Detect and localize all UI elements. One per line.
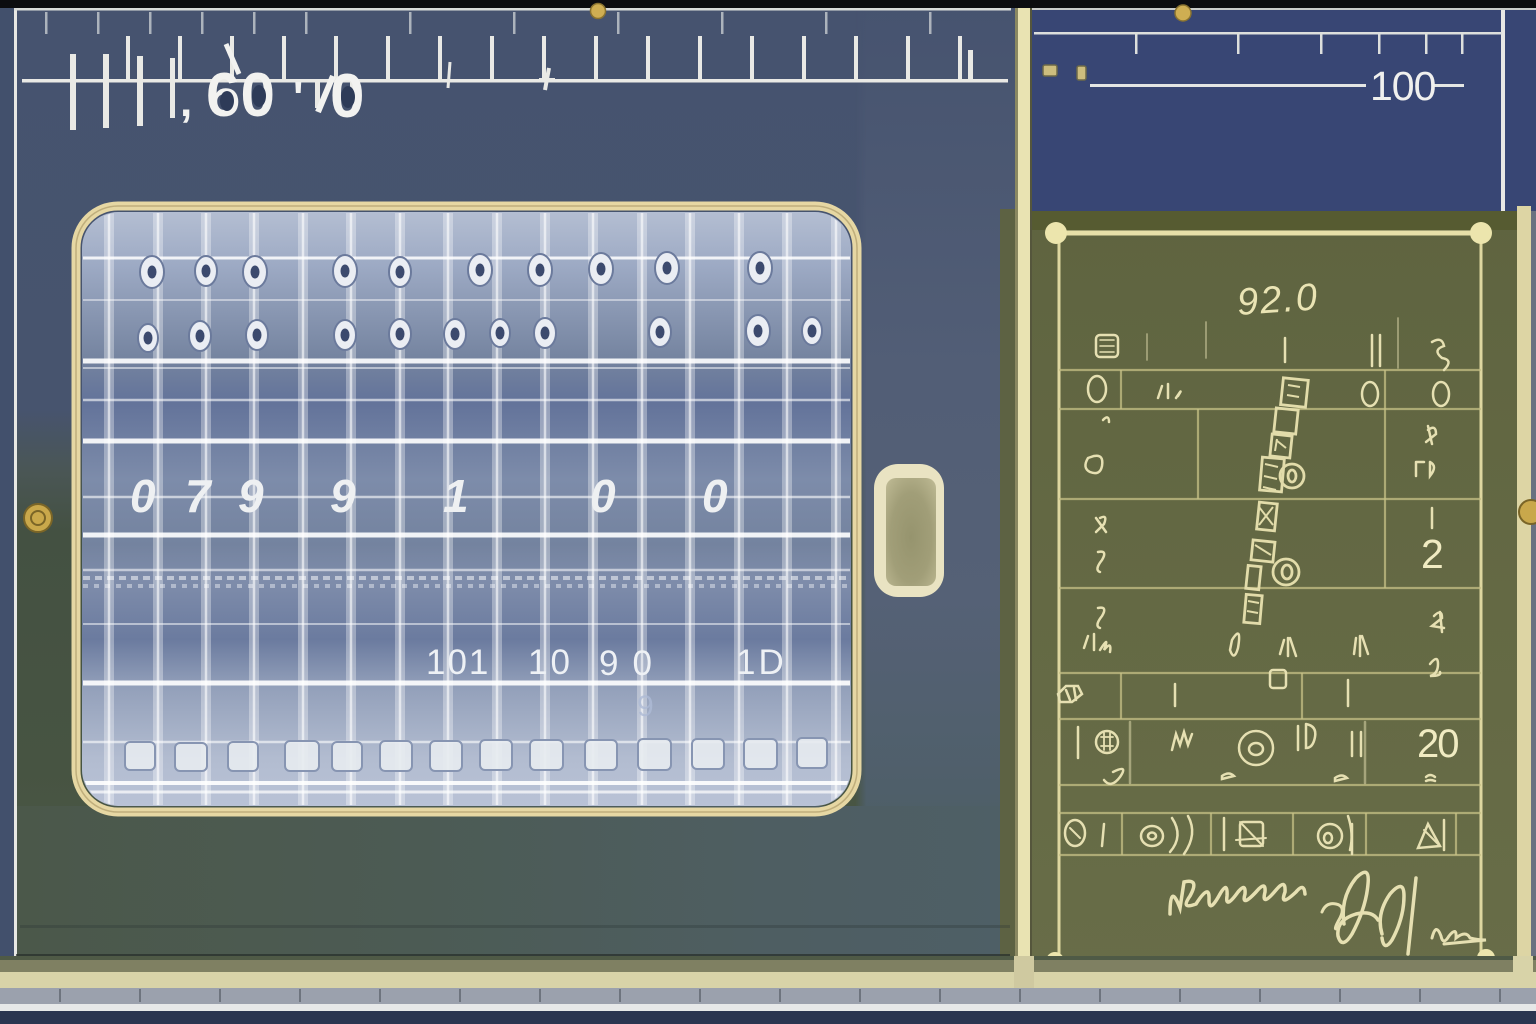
svg-text:9: 9 bbox=[637, 690, 654, 723]
svg-text:90: 90 bbox=[599, 644, 666, 683]
svg-text:20: 20 bbox=[1417, 722, 1458, 766]
svg-text:0: 0 bbox=[130, 470, 156, 522]
svg-text:2: 2 bbox=[1421, 531, 1444, 577]
svg-text:9: 9 bbox=[330, 470, 356, 522]
svg-text:': ' bbox=[293, 73, 303, 122]
svg-text:100: 100 bbox=[1370, 63, 1436, 109]
svg-text:9: 9 bbox=[238, 470, 264, 522]
svg-text:0: 0 bbox=[590, 470, 616, 522]
svg-text:7: 7 bbox=[185, 470, 213, 522]
svg-text:101: 101 bbox=[426, 643, 490, 682]
svg-text:0: 0 bbox=[702, 470, 728, 522]
svg-text:1: 1 bbox=[443, 470, 469, 522]
svg-text:,: , bbox=[180, 77, 192, 126]
svg-text:1D: 1D bbox=[736, 643, 787, 682]
svg-text:10: 10 bbox=[528, 643, 573, 682]
svg-text:92.0: 92.0 bbox=[1236, 276, 1321, 324]
